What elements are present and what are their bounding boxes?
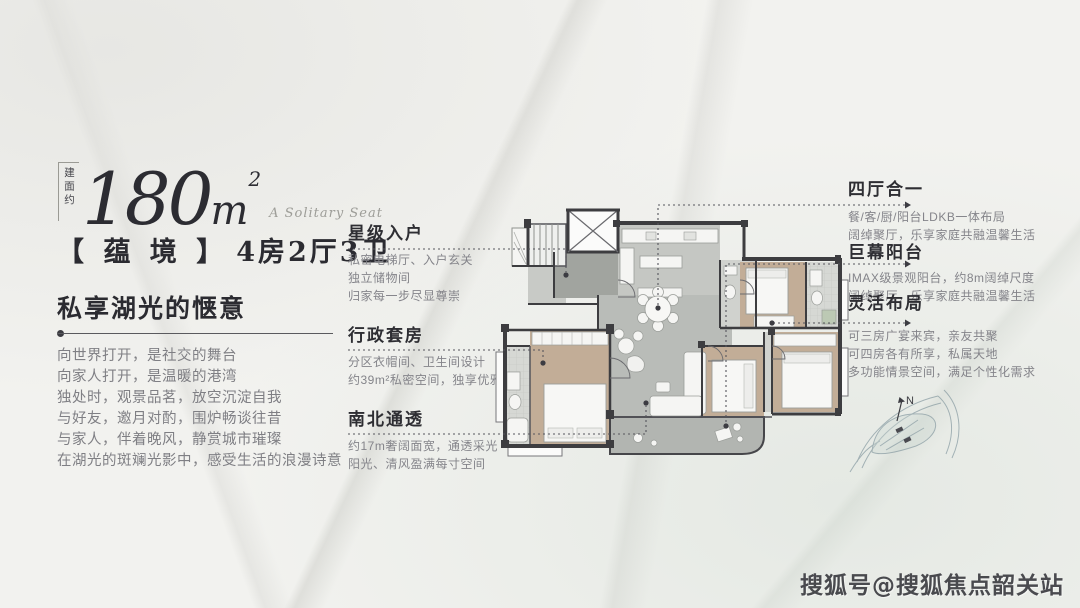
- intro-line: 向世界打开，是社交的舞台: [57, 346, 357, 367]
- callout-line: 多功能情景空间，满足个性化需求: [848, 366, 1078, 379]
- area-number: 180m2: [82, 163, 261, 235]
- callout-title: 灵活布局: [848, 294, 1078, 314]
- kitchen-counter: [622, 229, 718, 243]
- site-buildings: [895, 426, 911, 443]
- watermark: 搜狐号@搜狐焦点韶关站: [800, 566, 1064, 600]
- english-script-caption: A Solitary Seat: [269, 206, 383, 221]
- wardrobe: [532, 332, 608, 345]
- area-scope-label: 建面约: [58, 162, 79, 221]
- plant: [634, 434, 643, 443]
- callout-line: 可三房广宴来宾，亲友共聚: [848, 330, 1078, 343]
- callout-four-halls: 四厅合一 餐/客/厨/阳台LDKB一体布局 阔绰聚厅，乐享家庭共融温馨生活: [848, 180, 1078, 247]
- intro-paragraph: 向世界打开，是社交的舞台 向家人打开，是温暖的港湾 独处时，观景品茗，放空沉淀自…: [57, 346, 357, 472]
- intro-line: 在湖光的斑斓光影中，感受生活的浪漫诗意: [57, 451, 357, 472]
- sink: [507, 372, 520, 390]
- unit-title: 【 蕴 境 】4房2厅3卫: [57, 230, 392, 269]
- intro-line: 向家人打开，是温暖的港湾: [57, 367, 357, 388]
- sofa-chaise: [650, 396, 702, 416]
- area-badge: 建面约 180m2 A Solitary Seat: [58, 150, 383, 235]
- dresser: [754, 316, 794, 327]
- intro-line: 与好友，邀月对酌，围炉畅谈往昔: [57, 409, 357, 430]
- intro-heading: 私享湖光的惬意: [57, 294, 357, 324]
- callout-line: 餐/客/厨/阳台LDKB一体布局: [848, 211, 1078, 224]
- unit-name: 【 蕴 境 】: [57, 237, 228, 268]
- intro-line: 独处时，观景品茗，放空沉淀自我: [57, 388, 357, 409]
- floorplan: [488, 196, 860, 478]
- wardrobe: [774, 334, 836, 346]
- site-sketch: [850, 390, 959, 472]
- callout-title: 巨幕阳台: [848, 243, 1078, 263]
- balcony: [610, 417, 764, 454]
- shower: [822, 310, 836, 324]
- bathtub: [507, 418, 528, 442]
- fridge: [620, 248, 634, 284]
- callout-line: 阔绰聚厅，乐享家庭共融温馨生活: [848, 229, 1078, 242]
- compass-icon: N: [897, 395, 914, 421]
- poster-canvas: 建面约 180m2 A Solitary Seat 【 蕴 境 】4房2厅3卫 …: [0, 0, 1080, 608]
- heading-divider: [57, 330, 357, 337]
- callout-title: 四厅合一: [848, 180, 1078, 200]
- toilet: [509, 395, 521, 410]
- intro-line: 与家人，伴着晚风，静赏城市璀璨: [57, 430, 357, 451]
- callout-line: 可四房各有所享，私属天地: [848, 348, 1078, 361]
- intro-section: 私享湖光的惬意 向世界打开，是社交的舞台 向家人打开，是温暖的港湾 独处时，观景…: [57, 294, 357, 472]
- callout-line: IMAX级景观阳台，约8m阔绰尺度: [848, 272, 1078, 285]
- bay-window: [508, 447, 562, 456]
- compass-label: N: [906, 395, 914, 407]
- kitchen-island: [640, 256, 682, 268]
- callout-flexible-layout: 灵活布局 可三房广宴来宾，亲友共聚 可四房各有所享，私属天地 多功能情景空间，满…: [848, 294, 1078, 384]
